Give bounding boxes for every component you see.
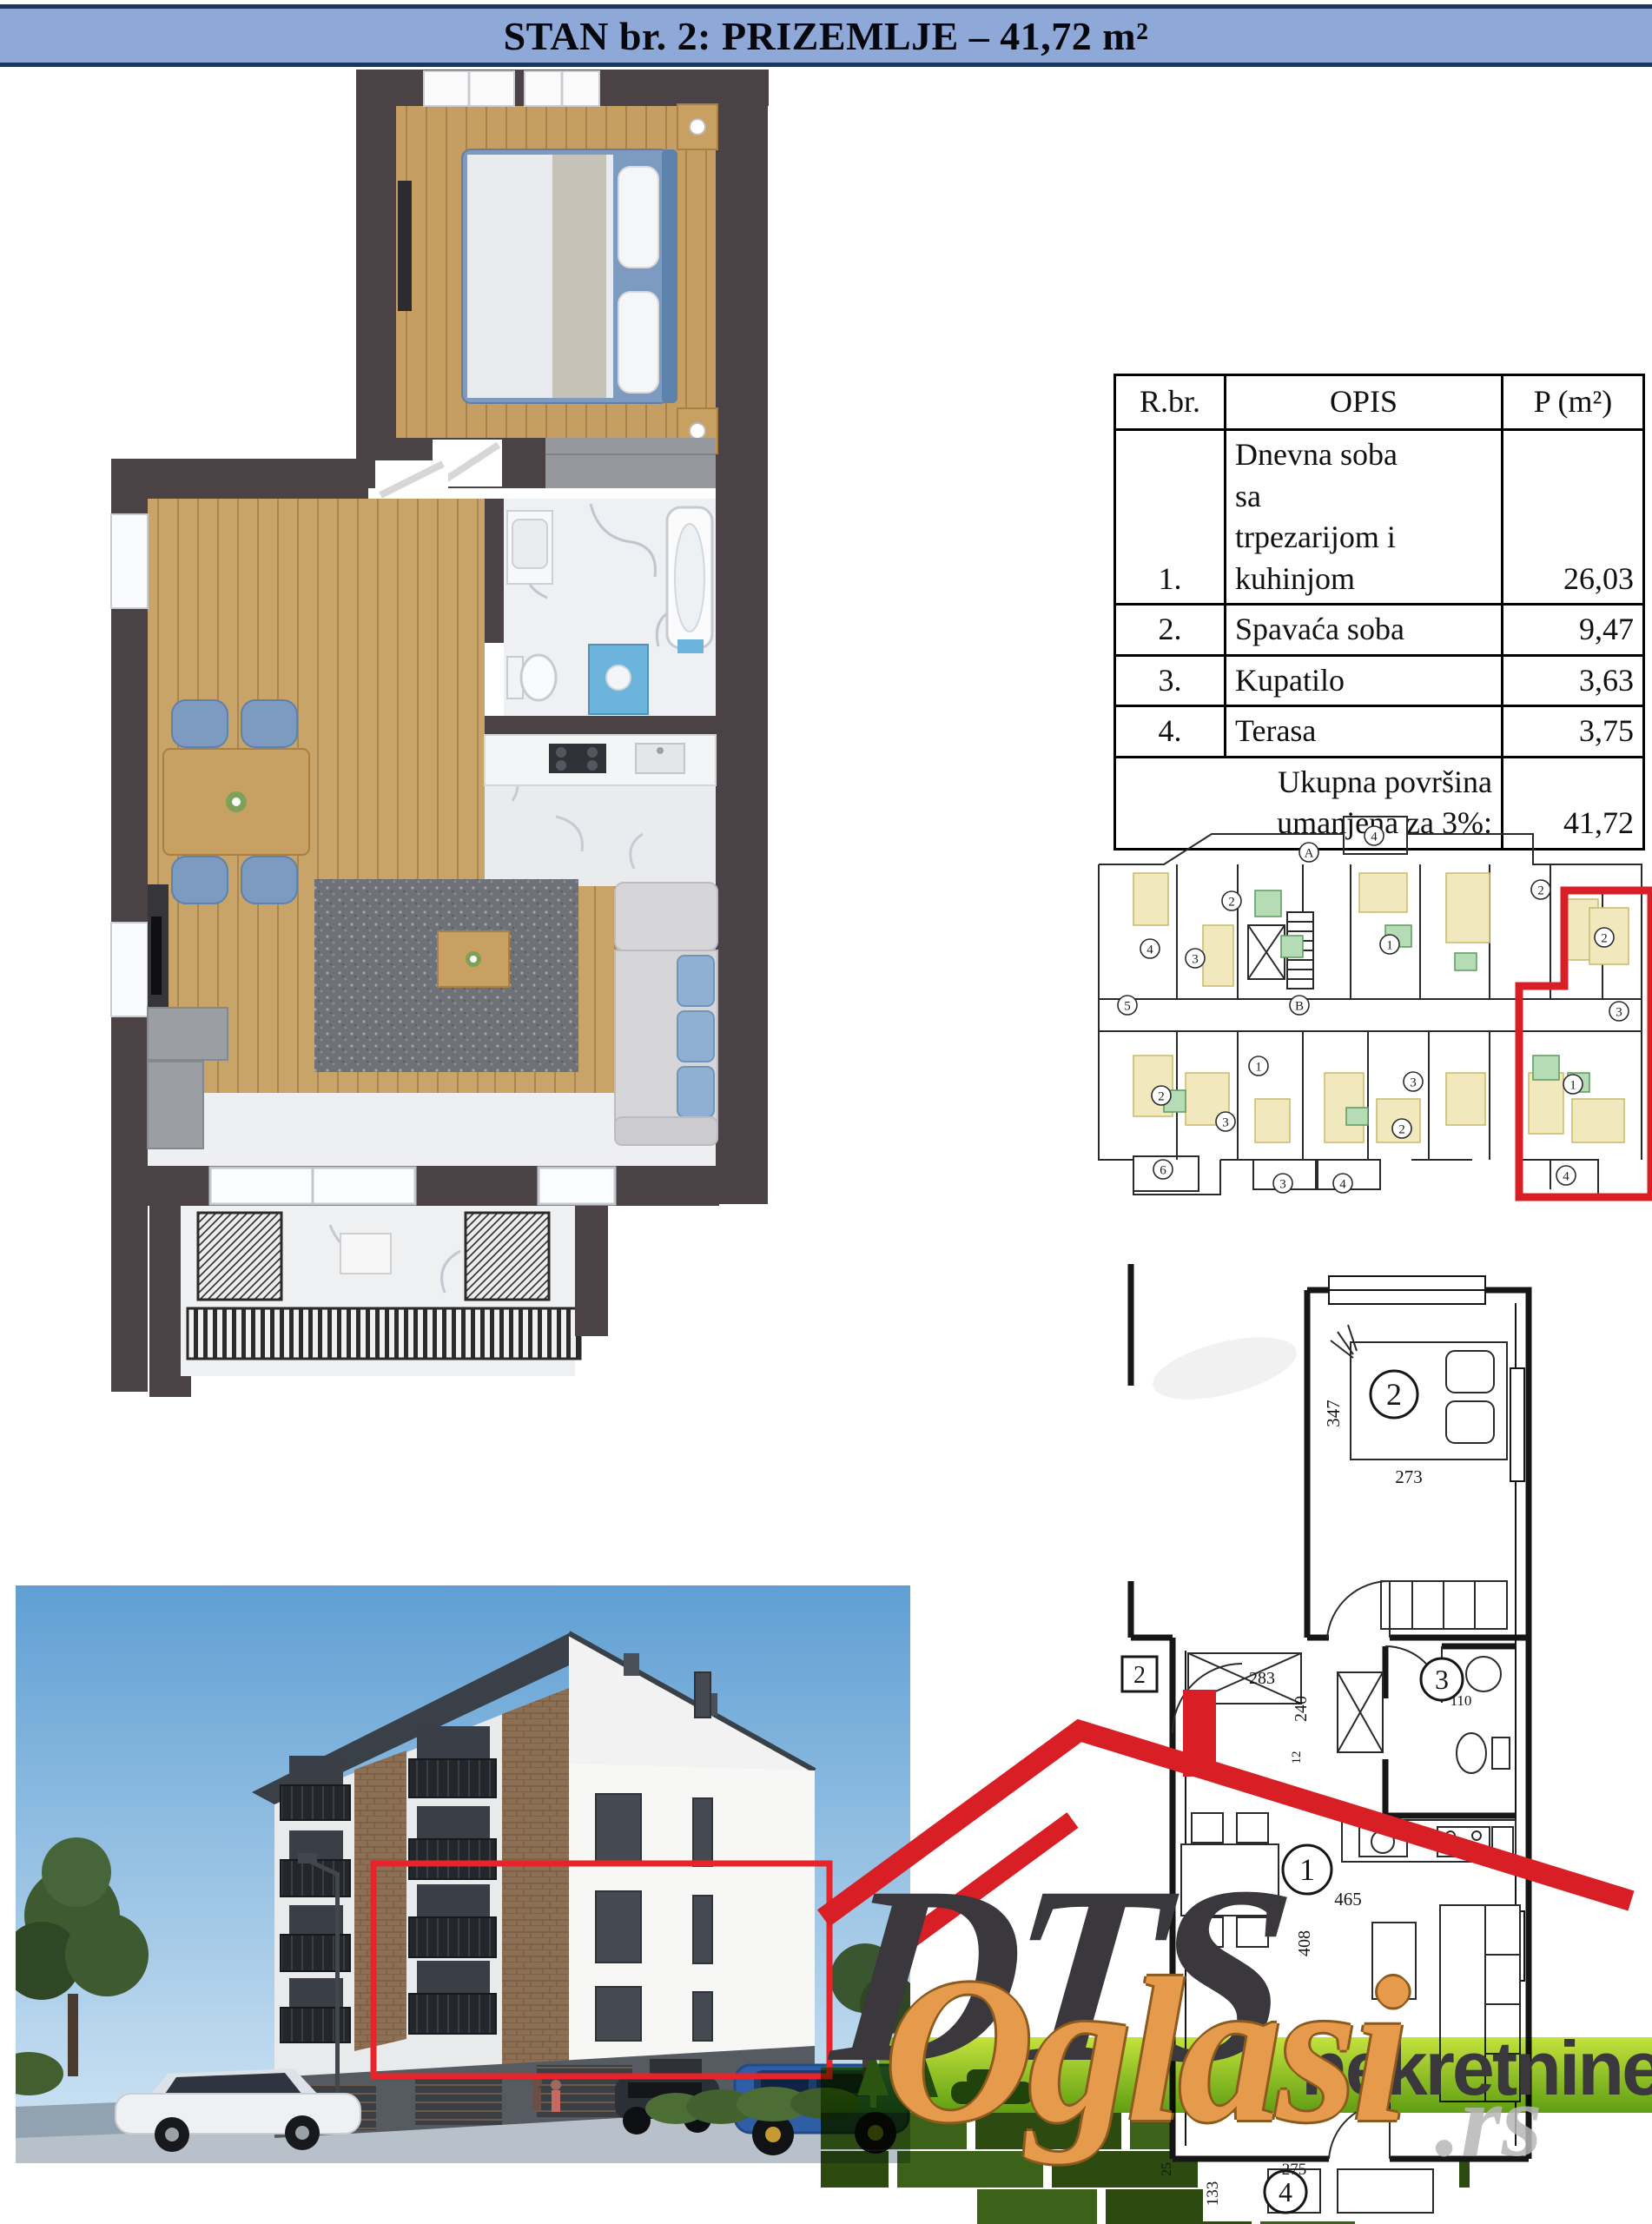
svg-text:133: 133 — [1204, 2181, 1222, 2207]
svg-text:283: 283 — [1249, 1669, 1275, 1688]
cell-desc: Dnevna soba sa trpezarijom i kuhinjom — [1226, 430, 1503, 605]
col-header-p: P (m²) — [1503, 375, 1644, 430]
cell-desc: Spavaća soba — [1226, 605, 1503, 656]
site-marker-label: B — [1295, 1000, 1304, 1014]
vanity-sink — [507, 511, 552, 584]
site-plan: 4A24315B2313222314634 — [1081, 812, 1652, 1225]
site-marker-label: 3 — [1222, 1116, 1229, 1130]
bed — [462, 149, 677, 403]
svg-text:2: 2 — [1133, 1662, 1146, 1689]
site-marker-label: 3 — [1410, 1076, 1417, 1090]
cell-num: 4. — [1115, 706, 1226, 758]
cell-num: 1. — [1115, 430, 1226, 605]
cell-num: 2. — [1115, 605, 1226, 656]
site-marker-label: 4 — [1146, 943, 1153, 957]
svg-text:347: 347 — [1323, 1400, 1344, 1427]
site-marker-label: 2 — [1601, 932, 1608, 946]
area-table-row: 3.Kupatilo3,63 — [1115, 655, 1644, 706]
sofa — [615, 883, 717, 1145]
kitchen-counter — [485, 735, 716, 785]
cell-area: 3,75 — [1503, 706, 1644, 758]
site-plan-furniture — [1133, 873, 1629, 1142]
site-marker-label: 1 — [1386, 939, 1393, 953]
svg-text:3: 3 — [1435, 1664, 1449, 1695]
wardrobe-mirror — [398, 181, 412, 311]
site-marker-label: 1 — [1569, 1079, 1576, 1093]
cell-area: 26,03 — [1503, 430, 1644, 605]
svg-text:2: 2 — [1386, 1377, 1402, 1412]
svg-text:273: 273 — [1395, 1466, 1423, 1487]
site-marker-label: 6 — [1160, 1164, 1166, 1178]
area-table-row: 2.Spavaća soba9,47 — [1115, 605, 1644, 656]
area-table-row: 1.Dnevna soba sa trpezarijom i kuhinjom2… — [1115, 430, 1644, 605]
listing-page: STAN br. 2: PRIZEMLJE – 41,72 m² — [0, 0, 1652, 2224]
cell-area: 9,47 — [1503, 605, 1644, 656]
building-photo — [16, 1585, 910, 2163]
site-marker-label: A — [1305, 847, 1314, 861]
scan-smudge — [1146, 1325, 1302, 1411]
cell-desc: Kupatilo — [1226, 655, 1503, 706]
logo-word-text: Oglasi — [884, 1948, 1404, 2154]
site-marker-label: 2 — [1228, 896, 1235, 910]
site-marker-label: 2 — [1158, 1090, 1165, 1104]
cell-num: 3. — [1115, 655, 1226, 706]
area-table-header-row: R.br. OPIS P (m²) — [1115, 375, 1644, 430]
svg-text:110: 110 — [1450, 1692, 1472, 1709]
site-marker-label: 4 — [1563, 1170, 1569, 1184]
cell-desc: Terasa — [1226, 706, 1503, 758]
area-table-row: 4.Terasa3,75 — [1115, 706, 1644, 758]
site-marker-label: 4 — [1371, 831, 1378, 844]
logo-brick — [977, 2189, 1097, 2224]
dresser — [545, 438, 716, 488]
bathtub — [667, 507, 712, 648]
site-marker-label: 1 — [1255, 1061, 1262, 1075]
col-header-rbr: R.br. — [1115, 375, 1226, 430]
site-marker-label: 3 — [1279, 1178, 1286, 1192]
site-marker-label: 2 — [1398, 1123, 1405, 1137]
header-bar: STAN br. 2: PRIZEMLJE – 41,72 m² — [0, 4, 1652, 67]
area-table: R.br. OPIS P (m²) 1.Dnevna soba sa trpez… — [1113, 374, 1645, 851]
floorplan-3d — [69, 69, 938, 1625]
site-marker-label: 5 — [1124, 1000, 1131, 1014]
svg-text:240: 240 — [1292, 1696, 1311, 1722]
coffee-table — [438, 931, 509, 987]
svg-text:4: 4 — [1279, 2176, 1292, 2207]
svg-text:12: 12 — [1290, 1751, 1304, 1764]
toilet — [507, 655, 556, 700]
page-title: STAN br. 2: PRIZEMLJE – 41,72 m² — [504, 13, 1149, 59]
svg-text:1: 1 — [1299, 1852, 1315, 1887]
col-header-opis: OPIS — [1226, 375, 1503, 430]
site-marker-label: 3 — [1616, 1006, 1622, 1020]
cell-area: 3,63 — [1503, 655, 1644, 706]
site-marker-label: 3 — [1192, 953, 1199, 967]
logo-brick — [821, 2151, 889, 2188]
terrace-decking — [188, 1308, 580, 1359]
svg-text:465: 465 — [1334, 1889, 1362, 1910]
site-marker-label: 2 — [1537, 884, 1544, 898]
site-marker-label: 4 — [1339, 1178, 1346, 1192]
